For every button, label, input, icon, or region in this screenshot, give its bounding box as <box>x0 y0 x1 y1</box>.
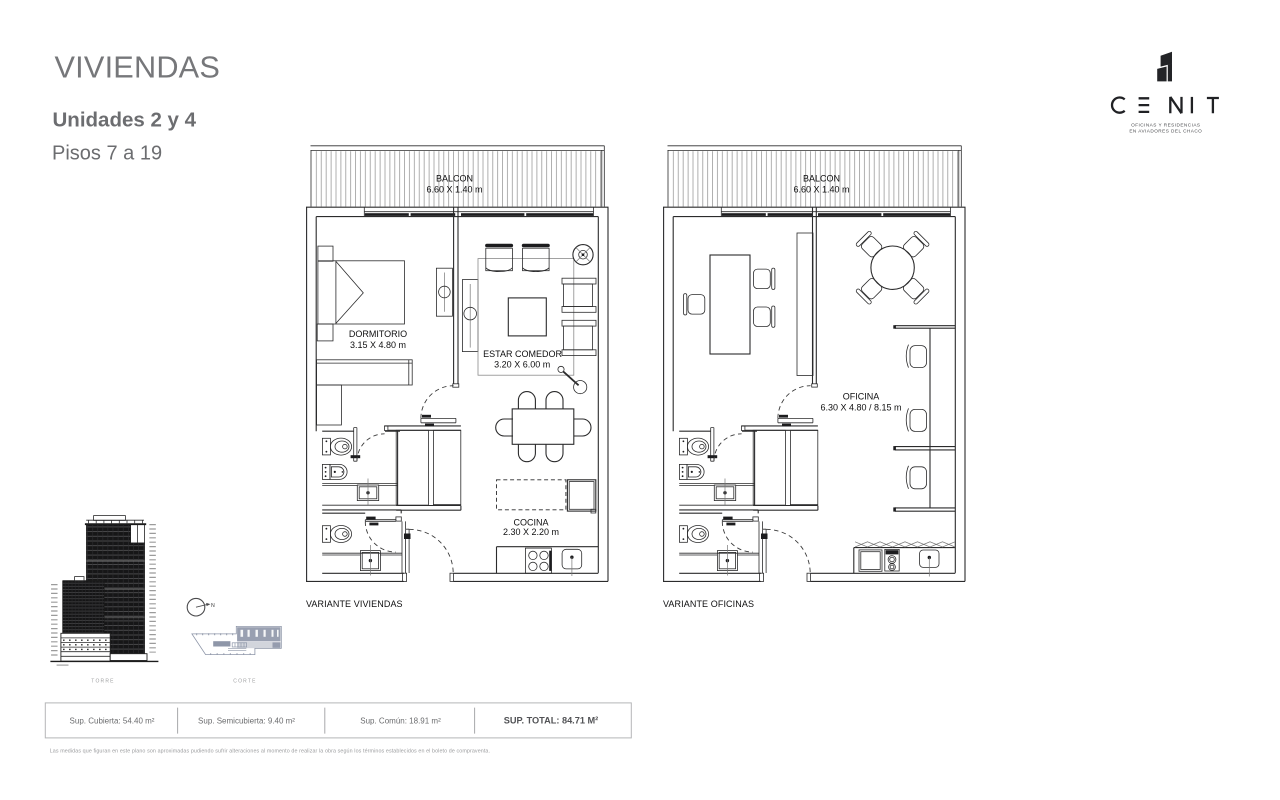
svg-text:TORRE: TORRE <box>91 679 114 685</box>
svg-text:BALCON: BALCON <box>436 173 473 183</box>
svg-text:6.60 X 1.40 m: 6.60 X 1.40 m <box>793 185 849 195</box>
svg-text:Sup. Común: 18.91 m²: Sup. Común: 18.91 m² <box>360 716 441 725</box>
svg-text:3.20 X 6.00 m: 3.20 X 6.00 m <box>494 359 550 369</box>
svg-text:6.60 X 1.40 m: 6.60 X 1.40 m <box>426 185 482 195</box>
svg-text:OFICINAS Y RESIDENCIAS: OFICINAS Y RESIDENCIAS <box>1131 123 1200 128</box>
svg-text:EN AVIADORES DEL CHACO: EN AVIADORES DEL CHACO <box>1129 129 1202 134</box>
svg-text:ESTAR COMEDOR: ESTAR COMEDOR <box>483 349 562 359</box>
svg-text:2.30 X 2.20 m: 2.30 X 2.20 m <box>503 527 559 537</box>
svg-text:CORTE: CORTE <box>233 679 256 685</box>
svg-text:VARIANTE VIVIENDAS: VARIANTE VIVIENDAS <box>306 599 403 609</box>
svg-text:Pisos 7 a 19: Pisos 7 a 19 <box>52 143 162 165</box>
svg-text:3.15 X 4.80 m: 3.15 X 4.80 m <box>350 340 406 350</box>
svg-text:VARIANTE OFICINAS: VARIANTE OFICINAS <box>663 599 754 609</box>
svg-text:SUP. TOTAL: 84.71 M²: SUP. TOTAL: 84.71 M² <box>504 716 598 726</box>
svg-text:BALCON: BALCON <box>803 173 840 183</box>
svg-text:Unidades 2 y 4: Unidades 2 y 4 <box>53 108 197 131</box>
svg-text:Sup. Cubierta: 54.40 m²: Sup. Cubierta: 54.40 m² <box>70 716 155 725</box>
svg-text:6.30 X 4.80 / 8.15 m: 6.30 X 4.80 / 8.15 m <box>820 402 901 412</box>
svg-text:DORMITORIO: DORMITORIO <box>349 329 407 339</box>
svg-text:Sup. Semicubierta: 9.40 m²: Sup. Semicubierta: 9.40 m² <box>198 716 295 725</box>
svg-text:VIVIENDAS: VIVIENDAS <box>55 49 221 84</box>
svg-text:N: N <box>211 603 215 609</box>
svg-text:Las medidas que figuran en est: Las medidas que figuran en este plano so… <box>50 748 490 754</box>
svg-text:OFICINA: OFICINA <box>843 392 880 402</box>
